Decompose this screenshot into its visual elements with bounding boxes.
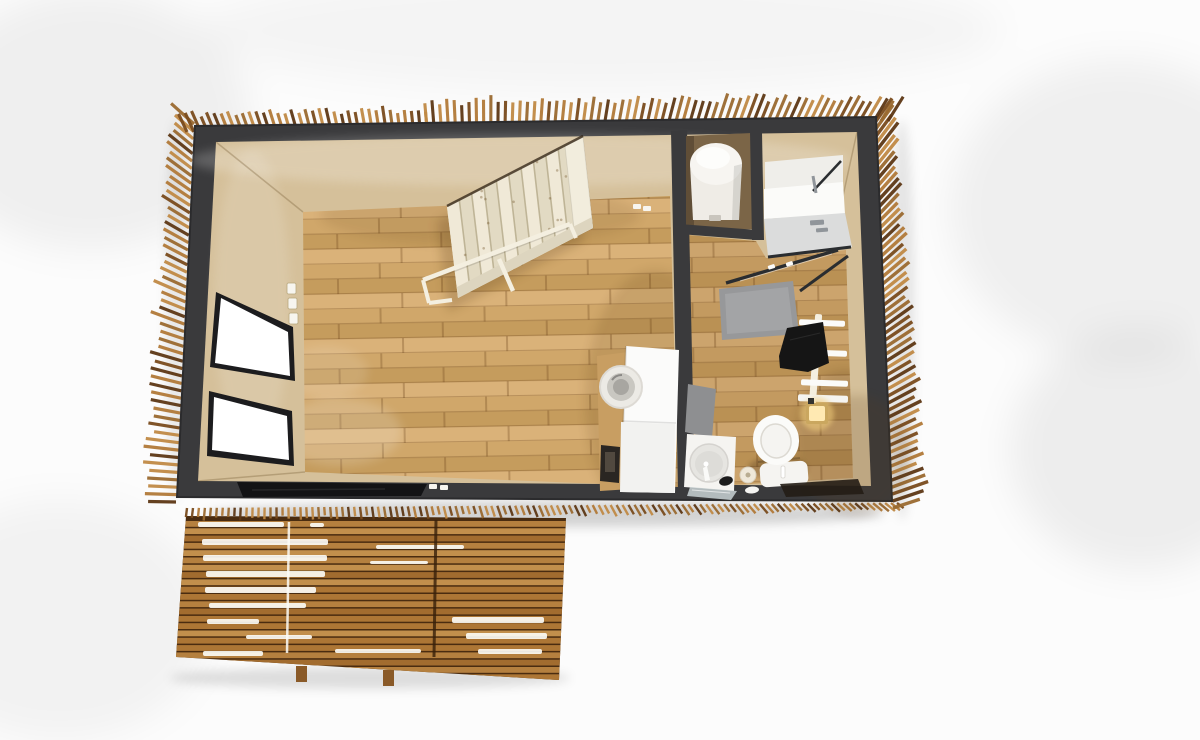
toilet-paper-roll — [740, 467, 756, 483]
sink-unit — [684, 434, 737, 500]
shower-valve-2 — [816, 228, 828, 233]
floorplan-render — [0, 0, 1200, 740]
washer-column — [597, 346, 679, 493]
lower-unit — [620, 422, 675, 493]
flush-button — [781, 466, 785, 478]
deck-seam-dark — [434, 520, 436, 657]
light-switches — [287, 283, 298, 324]
bath-mat — [685, 384, 716, 438]
wall-sconce — [800, 397, 834, 431]
washing-machine-door — [600, 366, 642, 408]
shower-valve — [810, 220, 824, 226]
floorplan-svg — [0, 0, 1200, 740]
black-glass-door — [237, 482, 427, 497]
closet-side-wall — [750, 132, 764, 240]
boiler-closet — [680, 132, 764, 240]
boiler-tank — [690, 143, 742, 221]
